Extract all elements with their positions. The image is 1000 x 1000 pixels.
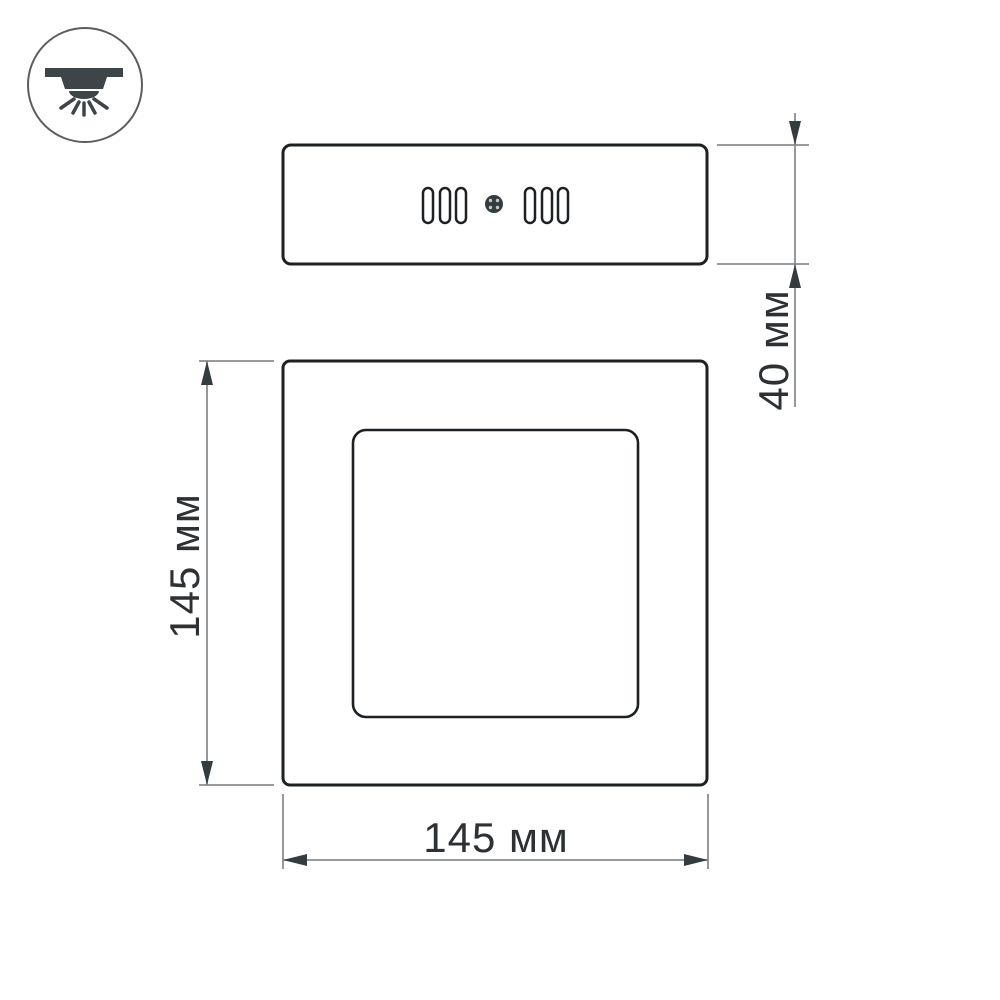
arrow-up-icon (789, 264, 801, 288)
side-view (283, 145, 707, 264)
icon-ceiling-plate (45, 68, 123, 77)
front-view-diffuser (353, 430, 638, 717)
arrow-right-icon (684, 854, 708, 866)
front-view (283, 361, 707, 785)
width-dimension-label: 145 мм (423, 814, 569, 862)
vent-slots-right (525, 188, 568, 223)
arrow-up-icon (201, 361, 213, 385)
dimension-drawing-page: 40 мм 145 мм 145 мм (0, 0, 1000, 1000)
height-dimension-label: 145 мм (161, 493, 209, 639)
icon-lamp-body (61, 77, 107, 89)
dimension-height (199, 361, 274, 785)
surface-mounted-downlight-icon (28, 28, 142, 142)
vent-slots-left (423, 188, 466, 223)
arrow-left-icon (283, 854, 307, 866)
arrow-down-icon (201, 761, 213, 785)
screw-icon (485, 195, 503, 213)
arrow-down-icon (789, 121, 801, 145)
depth-dimension-label: 40 мм (750, 289, 798, 410)
